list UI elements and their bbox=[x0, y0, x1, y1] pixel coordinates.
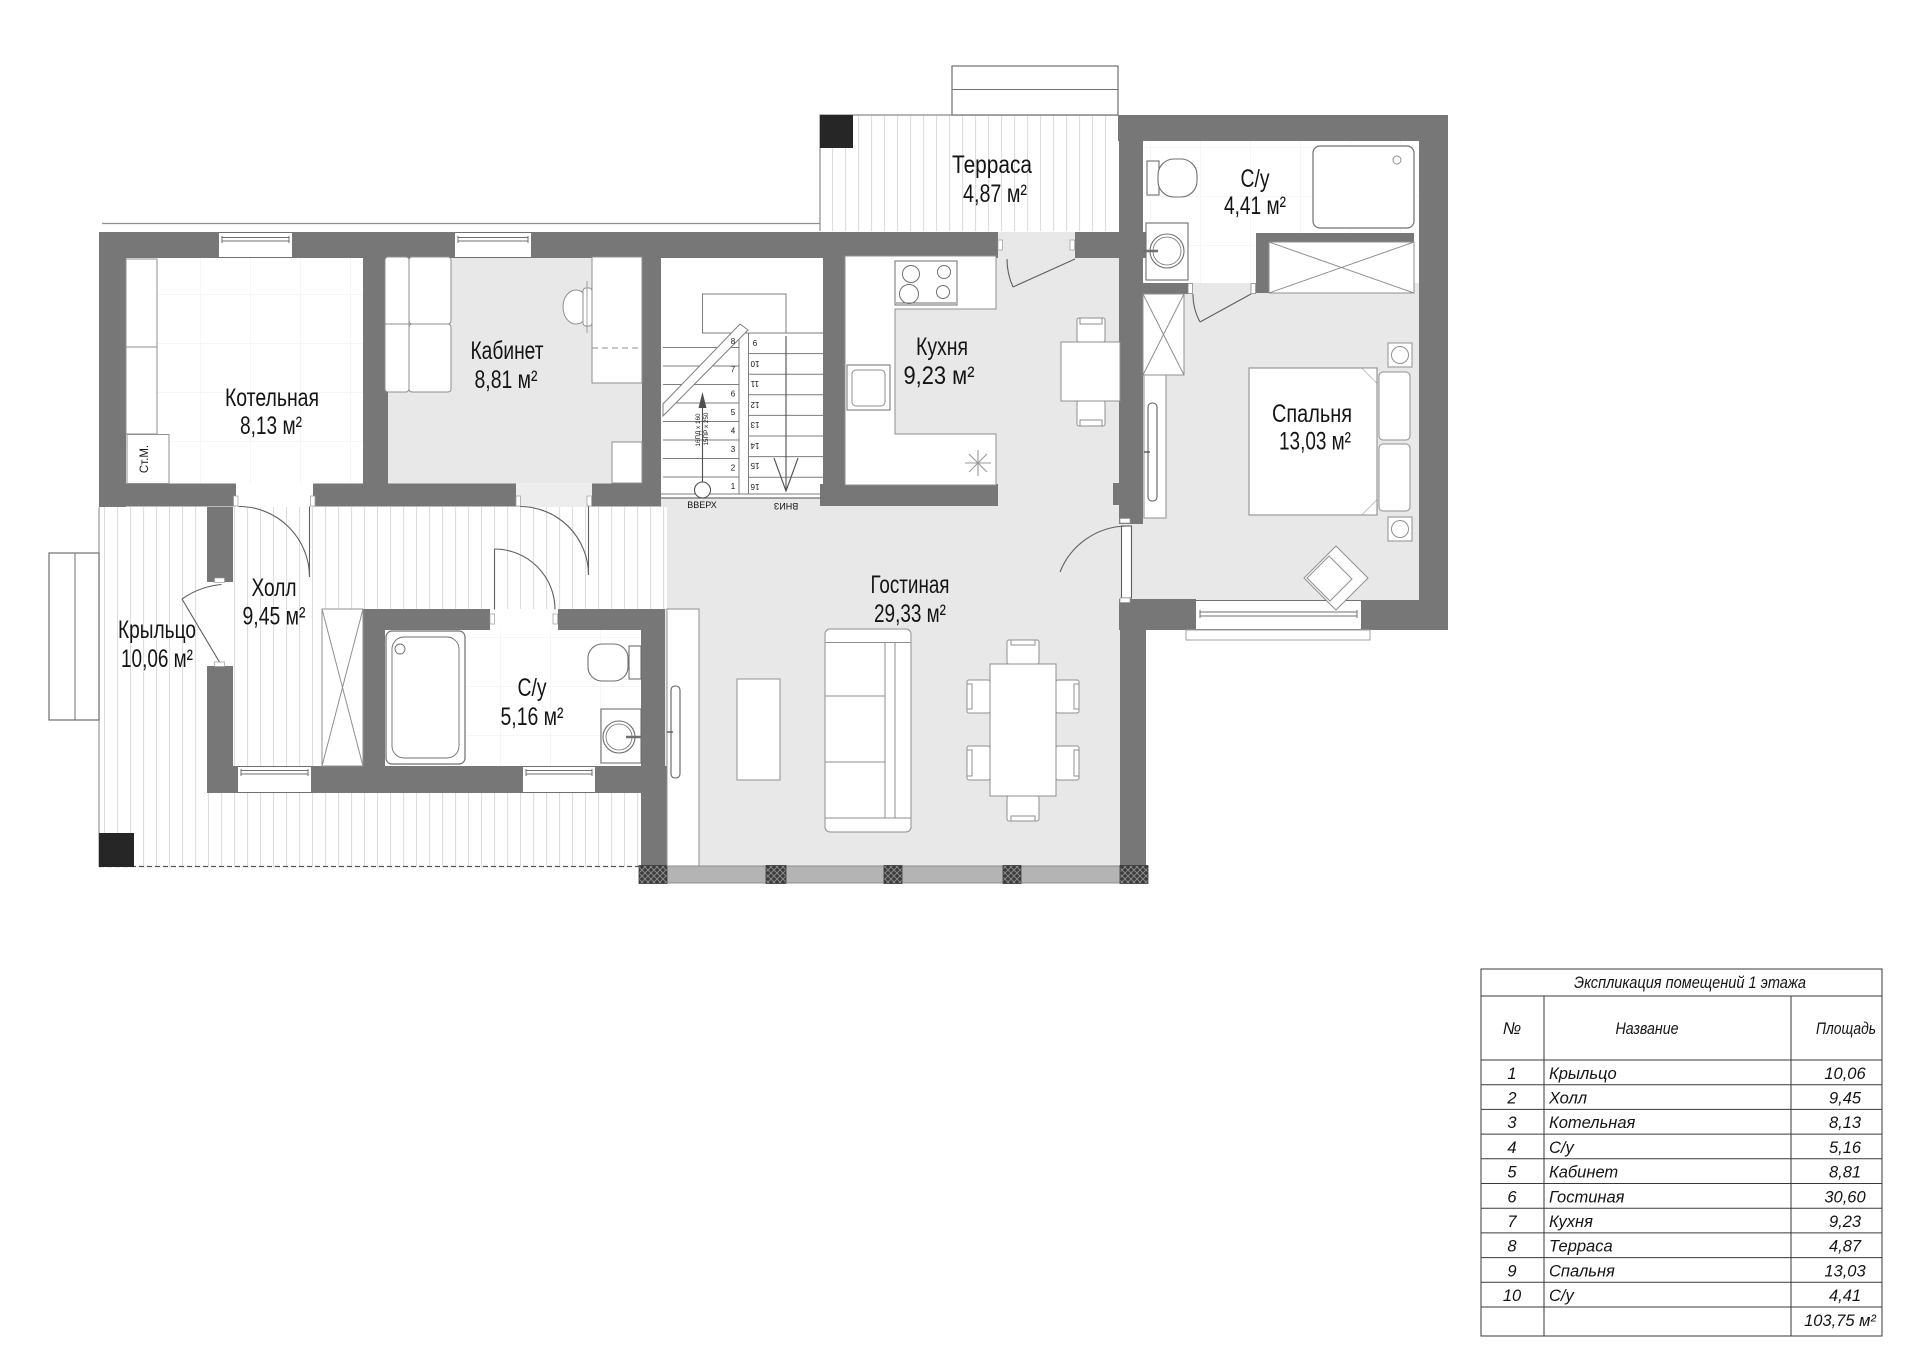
svg-text:8,13 м²: 8,13 м² bbox=[240, 412, 302, 440]
svg-text:30,60: 30,60 bbox=[1824, 1188, 1866, 1206]
svg-text:Котельная: Котельная bbox=[225, 384, 319, 412]
svg-text:№: № bbox=[1503, 1019, 1521, 1038]
svg-text:9,45 м²: 9,45 м² bbox=[243, 603, 306, 631]
svg-text:Название: Название bbox=[1616, 1019, 1679, 1038]
svg-text:Кухня: Кухня bbox=[916, 333, 968, 361]
svg-text:12: 12 bbox=[750, 400, 759, 409]
svg-text:Кухня: Кухня bbox=[1549, 1213, 1593, 1231]
svg-text:103,75 м²: 103,75 м² bbox=[1804, 1312, 1876, 1330]
svg-text:Котельная: Котельная bbox=[1549, 1114, 1636, 1132]
svg-text:8,81: 8,81 bbox=[1829, 1164, 1861, 1182]
svg-text:5,16: 5,16 bbox=[1829, 1139, 1862, 1157]
svg-text:9: 9 bbox=[752, 338, 757, 347]
svg-text:С/у: С/у bbox=[1241, 165, 1270, 193]
svg-text:13,03: 13,03 bbox=[1824, 1262, 1866, 1280]
svg-text:10: 10 bbox=[750, 359, 759, 368]
svg-text:Спальня: Спальня bbox=[1549, 1262, 1615, 1280]
svg-text:9,23: 9,23 bbox=[1829, 1213, 1862, 1231]
svg-text:13: 13 bbox=[750, 420, 759, 429]
svg-text:2: 2 bbox=[731, 464, 736, 473]
svg-text:Кабинет: Кабинет bbox=[471, 337, 544, 365]
svg-text:4,41: 4,41 bbox=[1829, 1287, 1861, 1305]
svg-text:5,16 м²: 5,16 м² bbox=[501, 703, 564, 731]
svg-text:2: 2 bbox=[1506, 1090, 1516, 1108]
svg-text:29,33 м²: 29,33 м² bbox=[874, 600, 946, 628]
svg-text:10,06: 10,06 bbox=[1824, 1065, 1866, 1083]
svg-text:11: 11 bbox=[750, 379, 759, 388]
svg-text:Гостиная: Гостиная bbox=[871, 571, 950, 599]
svg-text:10,06 м²: 10,06 м² bbox=[121, 645, 193, 673]
svg-text:4: 4 bbox=[731, 427, 736, 436]
svg-text:4,87: 4,87 bbox=[1829, 1238, 1862, 1256]
svg-text:Ст.М.: Ст.М. bbox=[139, 445, 151, 473]
svg-text:16: 16 bbox=[750, 482, 759, 491]
svg-text:1: 1 bbox=[731, 482, 736, 491]
svg-text:5: 5 bbox=[731, 408, 736, 417]
svg-text:ВНИЗ: ВНИЗ bbox=[774, 501, 798, 511]
svg-text:13,03 м²: 13,03 м² bbox=[1279, 428, 1351, 456]
svg-text:5: 5 bbox=[1507, 1164, 1517, 1182]
svg-text:9,23 м²: 9,23 м² bbox=[904, 362, 975, 390]
svg-text:Холл: Холл bbox=[252, 574, 297, 602]
svg-text:14: 14 bbox=[750, 441, 759, 450]
svg-text:Гостиная: Гостиная bbox=[1549, 1188, 1625, 1206]
svg-text:1: 1 bbox=[1507, 1065, 1516, 1083]
svg-text:Терраса: Терраса bbox=[952, 151, 1032, 179]
svg-text:С/у: С/у bbox=[1549, 1287, 1576, 1305]
svg-text:6: 6 bbox=[731, 390, 736, 399]
svg-text:ВВЕРХ: ВВЕРХ bbox=[687, 500, 717, 510]
svg-text:8: 8 bbox=[731, 337, 736, 346]
svg-text:Экспликация помещений 1 этажа: Экспликация помещений 1 этажа bbox=[1574, 973, 1806, 992]
svg-text:Кабинет: Кабинет bbox=[1549, 1164, 1618, 1182]
svg-text:4: 4 bbox=[1507, 1139, 1516, 1157]
svg-text:С/у: С/у bbox=[1549, 1139, 1576, 1157]
svg-text:8: 8 bbox=[1507, 1238, 1517, 1256]
svg-text:15: 15 bbox=[750, 461, 759, 470]
svg-text:9,45: 9,45 bbox=[1829, 1090, 1862, 1108]
svg-text:6: 6 bbox=[1507, 1188, 1517, 1206]
svg-text:С/у: С/у bbox=[518, 674, 547, 702]
svg-text:3: 3 bbox=[1507, 1114, 1517, 1132]
svg-text:7: 7 bbox=[731, 365, 736, 374]
svg-text:7: 7 bbox=[1507, 1213, 1517, 1231]
svg-text:16ПД x 160: 16ПД x 160 bbox=[695, 413, 702, 446]
svg-text:3: 3 bbox=[731, 445, 736, 454]
svg-text:Холл: Холл bbox=[1548, 1090, 1587, 1108]
svg-text:15ПР x 250: 15ПР x 250 bbox=[703, 412, 710, 445]
svg-text:Спальня: Спальня bbox=[1272, 400, 1352, 428]
svg-text:8,13: 8,13 bbox=[1829, 1114, 1862, 1132]
svg-text:8,81 м²: 8,81 м² bbox=[475, 366, 538, 394]
svg-text:9: 9 bbox=[1507, 1262, 1516, 1280]
svg-text:Крыльцо: Крыльцо bbox=[1549, 1065, 1617, 1083]
svg-text:10: 10 bbox=[1503, 1287, 1522, 1305]
svg-text:Терраса: Терраса bbox=[1549, 1238, 1613, 1256]
svg-text:Крыльцо: Крыльцо bbox=[118, 616, 196, 644]
svg-text:Площадь: Площадь bbox=[1816, 1019, 1876, 1038]
svg-text:4,41 м²: 4,41 м² bbox=[1224, 192, 1286, 220]
svg-text:4,87 м²: 4,87 м² bbox=[963, 180, 1027, 208]
